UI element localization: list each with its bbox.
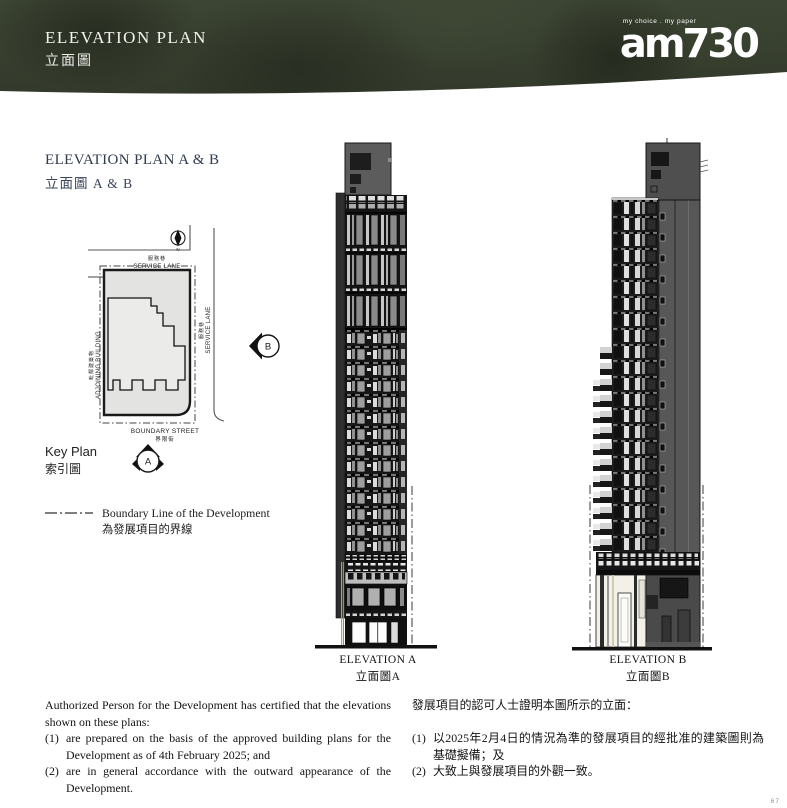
notes-english: Authorized Person for the Development ha…	[45, 697, 391, 797]
notes-en-intro: Authorized Person for the Development ha…	[45, 697, 391, 730]
legend-text-zh: 為發展項目的界線	[102, 522, 270, 539]
service-lane-right-zh: 服務巷	[198, 321, 205, 339]
item-number: (1)	[412, 730, 433, 763]
key-plan-label: Key Plan	[45, 444, 97, 459]
am730-logo: my choice . my paper am730	[620, 18, 757, 63]
adjoining-building-en: ADJOINING BUILDING	[96, 331, 102, 399]
elevation-a-caption-en: ELEVATION A	[313, 654, 443, 666]
key-plan-label-zh: 索引圖	[45, 460, 81, 477]
key-plan-drawing: N 服務巷 SERVICE LANE 服務巷 SERVICE LANE 毗鄰建築…	[45, 220, 295, 475]
item-text: are prepared on the basis of the approve…	[66, 730, 391, 763]
elevation-b-drawing	[566, 138, 716, 655]
legend-text-en: Boundary Line of the Development	[102, 505, 270, 522]
section-heading: ELEVATION PLAN A & B	[45, 152, 219, 169]
boundary-street-zh: 界限街	[155, 435, 175, 443]
page-number: 67	[771, 798, 780, 805]
service-lane-right-en: SERVICE LANE	[206, 306, 212, 353]
notes-zh-item-1: (1) 以2025年2月4日的情況為準的發展項目的經批准的建築圖則為基礎擬備；及	[412, 730, 764, 763]
dash-dot-line-swatch	[45, 511, 93, 515]
elevation-b-caption: ELEVATION B 立面圖B	[583, 654, 713, 684]
elevation-a-caption: ELEVATION A 立面圖A	[313, 654, 443, 684]
item-text: 以2025年2月4日的情況為準的發展項目的經批准的建築圖則為基礎擬備；及	[433, 730, 764, 763]
view-marker-a: A	[132, 444, 164, 472]
item-number: (1)	[45, 730, 66, 763]
legend-boundary-line: Boundary Line of the Development 為發展項目的界…	[45, 505, 270, 539]
elevation-b-caption-en: ELEVATION B	[583, 654, 713, 666]
service-lane-top-zh: 服務巷	[148, 255, 166, 262]
marker-b-label: B	[265, 342, 271, 353]
notes-en-item-1: (1) are prepared on the basis of the app…	[45, 730, 391, 763]
view-marker-b: B	[249, 333, 279, 360]
north-compass-icon: N	[171, 230, 185, 253]
page-header: ELEVATION PLAN 立面圖 my choice . my paper …	[0, 0, 787, 97]
page-title: ELEVATION PLAN	[45, 28, 207, 48]
item-number: (2)	[45, 763, 66, 796]
item-text: are in general accordance with the outwa…	[66, 763, 391, 796]
notes-en-item-2: (2) are in general accordance with the o…	[45, 763, 391, 796]
notes-chinese: 發展項目的認可人士證明本圖所示的立面： (1) 以2025年2月4日的情況為準的…	[412, 697, 764, 780]
adjoining-building-zh: 毗鄰建築物	[88, 350, 95, 380]
boundary-street-en: BOUNDARY STREET	[131, 428, 200, 435]
item-number: (2)	[412, 763, 433, 780]
logo-text: am730	[620, 26, 757, 63]
item-text: 大致上與發展項目的外觀一致。	[433, 763, 764, 780]
header-curve	[0, 66, 787, 97]
notes-zh-intro: 發展項目的認可人士證明本圖所示的立面：	[412, 697, 764, 714]
section-heading-zh: 立面圖 A & B	[45, 172, 133, 192]
north-label: N	[176, 247, 179, 252]
brochure-page: ELEVATION PLAN 立面圖 my choice . my paper …	[0, 0, 787, 808]
elevation-a-drawing	[310, 138, 440, 653]
elevation-a-caption-zh: 立面圖A	[313, 668, 443, 684]
notes-zh-item-2: (2) 大致上與發展項目的外觀一致。	[412, 763, 764, 780]
marker-a-label: A	[145, 457, 152, 468]
elevation-b-caption-zh: 立面圖B	[583, 668, 713, 684]
